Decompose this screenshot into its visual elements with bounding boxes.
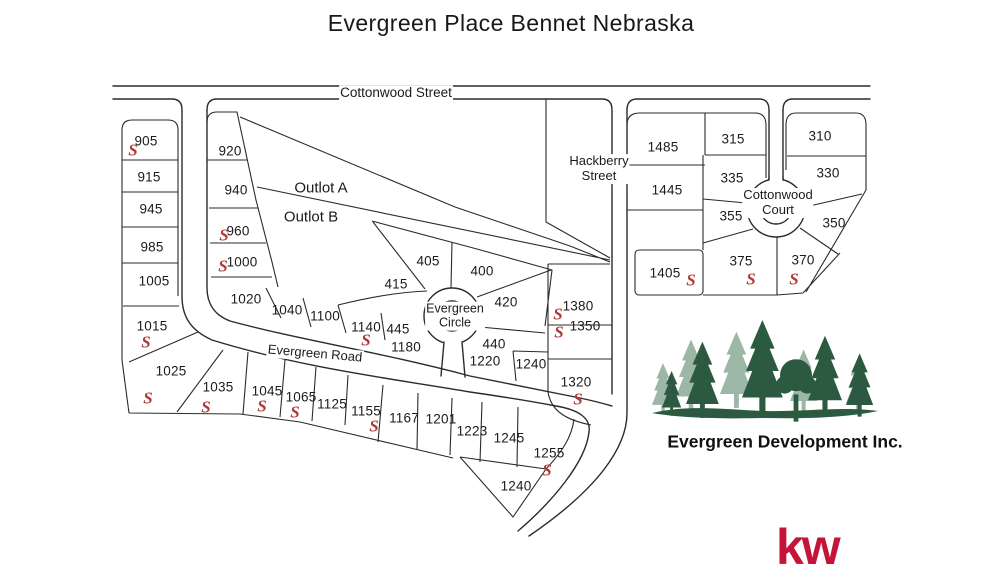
sold-marker: S	[218, 258, 227, 275]
lot-label: 1180	[391, 340, 421, 354]
lot-label: 355	[719, 209, 742, 223]
lot-label: 445	[386, 322, 409, 336]
lot-label: 400	[470, 264, 493, 278]
lot-label: 375	[729, 254, 752, 268]
sold-marker: S	[573, 391, 582, 408]
lot-label: 905	[134, 134, 157, 148]
sold-marker: S	[128, 142, 137, 159]
lot-label: 1240	[516, 357, 547, 371]
sold-marker: S	[290, 404, 299, 421]
sold-marker: S	[554, 324, 563, 341]
lot-labels-layer: 905S91594598510051015S1025S1035S1045S106…	[0, 0, 985, 588]
lot-label: 1167	[389, 411, 419, 425]
lot-label: 405	[416, 254, 439, 268]
sold-marker: S	[257, 398, 266, 415]
lot-label: 1125	[317, 397, 347, 411]
lot-label: 1000	[227, 255, 258, 269]
sold-marker: S	[219, 227, 228, 244]
lot-label: 1405	[650, 266, 681, 280]
lot-label: 330	[816, 166, 839, 180]
lot-label: 1201	[426, 412, 457, 426]
plat-map-page: Evergreen Place Bennet Nebraska	[0, 0, 985, 588]
lot-label: 1005	[139, 274, 170, 288]
lot-label: 310	[808, 129, 831, 143]
lot-label: 1040	[272, 303, 303, 317]
sold-marker: S	[361, 332, 370, 349]
lot-label: 1045	[252, 384, 283, 398]
lot-label: 370	[791, 253, 814, 267]
sold-marker: S	[201, 399, 210, 416]
lot-label: 1223	[457, 424, 488, 438]
lot-label: 1350	[570, 319, 601, 333]
lot-label: 1035	[203, 380, 234, 394]
lot-label: 915	[137, 170, 160, 184]
lot-label: 350	[822, 216, 845, 230]
lot-label: 1445	[652, 183, 683, 197]
sold-marker: S	[553, 306, 562, 323]
lot-label: 1020	[231, 292, 262, 306]
lot-label: 335	[720, 171, 743, 185]
lot-label: 1220	[470, 354, 501, 368]
sold-marker: S	[542, 462, 551, 479]
lot-label: 1320	[561, 375, 592, 389]
lot-label: 920	[218, 144, 241, 158]
lot-label: 440	[482, 337, 505, 351]
lot-label: 945	[139, 202, 162, 216]
lot-label: 985	[140, 240, 163, 254]
lot-label: 420	[494, 295, 517, 309]
lot-label: 1240	[501, 479, 532, 493]
sold-marker: S	[141, 334, 150, 351]
lot-label: 1485	[648, 140, 679, 154]
lot-label: 1015	[137, 319, 168, 333]
lot-label: 960	[226, 224, 249, 238]
lot-label: 1100	[310, 309, 340, 323]
lot-label: 1245	[494, 431, 525, 445]
lot-label: 1255	[534, 446, 565, 460]
lot-label: 1025	[156, 364, 187, 378]
lot-label: 1380	[563, 299, 594, 313]
lot-label: 940	[224, 183, 247, 197]
sold-marker: S	[369, 418, 378, 435]
sold-marker: S	[789, 271, 798, 288]
sold-marker: S	[143, 390, 152, 407]
lot-label: 315	[721, 132, 744, 146]
sold-marker: S	[686, 272, 695, 289]
lot-label: 415	[384, 277, 407, 291]
sold-marker: S	[746, 271, 755, 288]
